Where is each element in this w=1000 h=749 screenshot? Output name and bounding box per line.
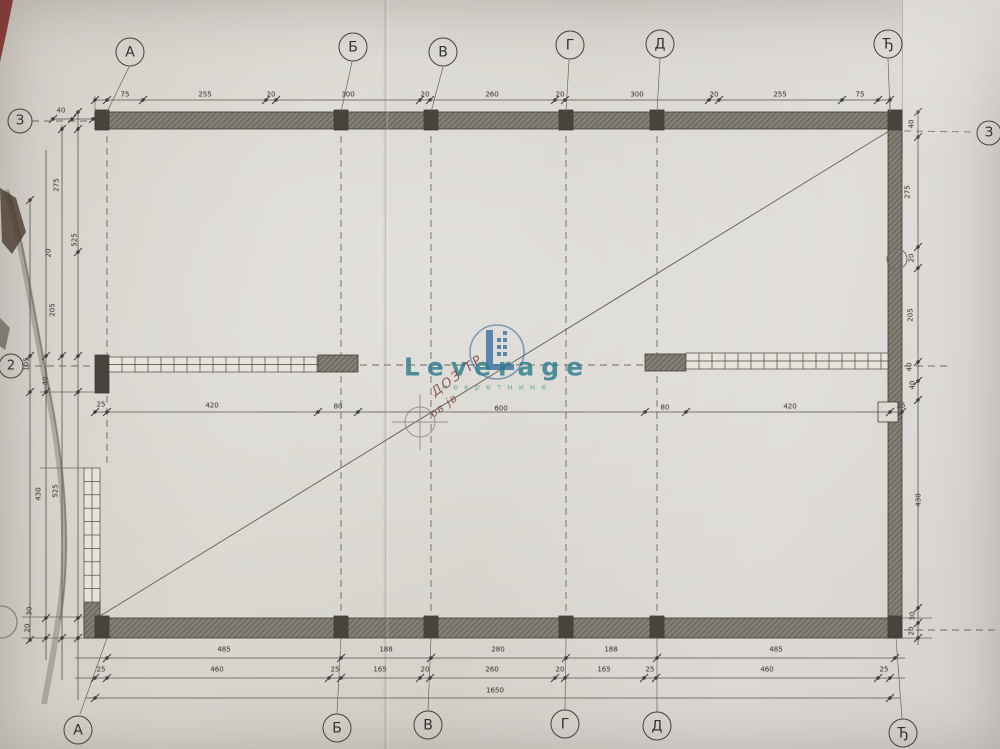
dimension-label: 75: [121, 92, 130, 99]
dimension-label: 20: [710, 92, 719, 99]
dimension-label: 255: [198, 92, 211, 99]
dimension-label: 20: [421, 92, 430, 99]
dimension-label: 20: [909, 254, 916, 263]
dimension-label: 1650: [486, 688, 504, 695]
dimension-label: 600: [494, 406, 507, 413]
dimension-label: 300: [341, 92, 354, 99]
axis-marker: Ђ: [889, 719, 918, 748]
axis-marker: Ђ: [874, 30, 903, 59]
blueprint-paper-photo: Leverage некретнине ДОЗ ТР ов јв 7525520…: [0, 0, 1000, 749]
dimension-label: 25: [897, 403, 906, 410]
dimension-label: 20: [46, 249, 53, 258]
axis-marker: З: [977, 121, 1000, 146]
dimension-label: 30: [27, 607, 34, 616]
dimension-label: 188: [379, 647, 392, 654]
axis-grid-lines: [23, 121, 998, 630]
dimension-label: 20: [25, 624, 32, 633]
dimension-label: 25: [880, 667, 889, 674]
dimension-label: 75: [856, 92, 865, 99]
dimension-label: 300: [630, 92, 643, 99]
window-bands: [84, 353, 888, 602]
dimension-label: 280: [491, 647, 504, 654]
dimension-lines: [30, 100, 918, 700]
dimension-label: 80: [334, 404, 343, 411]
wall-columns: [95, 110, 902, 638]
dimension-label: 485: [769, 647, 782, 654]
dimension-label: 80: [661, 405, 670, 412]
dimension-label: 25: [97, 402, 106, 409]
dimension-label: 165: [597, 667, 610, 674]
dimension-label: 188: [604, 647, 617, 654]
dimension-label: 25: [331, 667, 340, 674]
dimension-label: 205: [50, 303, 57, 316]
dimension-label: 420: [783, 404, 796, 411]
axis-marker: Г: [551, 710, 580, 739]
axis-marker: В: [414, 711, 443, 740]
dimension-label: 460: [210, 667, 223, 674]
axis-marker: В: [429, 38, 458, 67]
mid-pier: [318, 355, 358, 372]
dimension-label: 255: [773, 92, 786, 99]
dimension-label: 430: [916, 493, 923, 506]
dimension-label: 275: [905, 185, 912, 198]
axis-marker: Г: [556, 31, 585, 60]
dimension-label: 20: [421, 667, 430, 674]
dimension-label: 275: [54, 178, 61, 191]
floor-plan-drawing: [0, 0, 1000, 749]
axis-marker: А: [64, 716, 93, 745]
axis-marker: Б: [339, 33, 368, 62]
dimension-ticks: [26, 96, 922, 702]
dimension-label: 25: [97, 667, 106, 674]
axis-marker: Б: [323, 714, 352, 743]
dimension-label: 40: [907, 363, 914, 372]
dimension-label: 205: [908, 308, 915, 321]
dimension-label: 430: [36, 487, 43, 500]
dimension-label: 30: [910, 612, 917, 621]
mid-pier: [95, 355, 109, 393]
axis-marker: А: [116, 38, 145, 67]
dimension-label: 40: [910, 381, 917, 390]
axis-marker: Д: [643, 712, 672, 741]
dimension-label: 20: [267, 92, 276, 99]
dimension-label: 460: [760, 667, 773, 674]
mid-pier: [645, 354, 686, 371]
axis-marker: З: [8, 109, 33, 134]
dimension-label: 165: [373, 667, 386, 674]
dimension-label: 525: [72, 233, 79, 246]
dimension-label: 20: [909, 627, 916, 636]
dimension-label: 260: [485, 667, 498, 674]
dimension-label: 485: [217, 647, 230, 654]
axis-marker: Д: [646, 30, 675, 59]
dimension-label: 420: [205, 403, 218, 410]
dimension-label: 25: [646, 667, 655, 674]
dimension-label: 20: [556, 92, 565, 99]
dimension-label: 40: [57, 108, 66, 115]
dimension-label: 260: [485, 92, 498, 99]
center-mark: [392, 394, 448, 450]
dimension-label: 525: [53, 484, 60, 497]
dimension-label: 40: [43, 377, 50, 386]
dimension-label: 105: [24, 357, 31, 370]
diagonal-reference-line: [100, 131, 889, 616]
dimension-label: 20: [556, 667, 565, 674]
dimension-label: 40: [909, 120, 916, 129]
